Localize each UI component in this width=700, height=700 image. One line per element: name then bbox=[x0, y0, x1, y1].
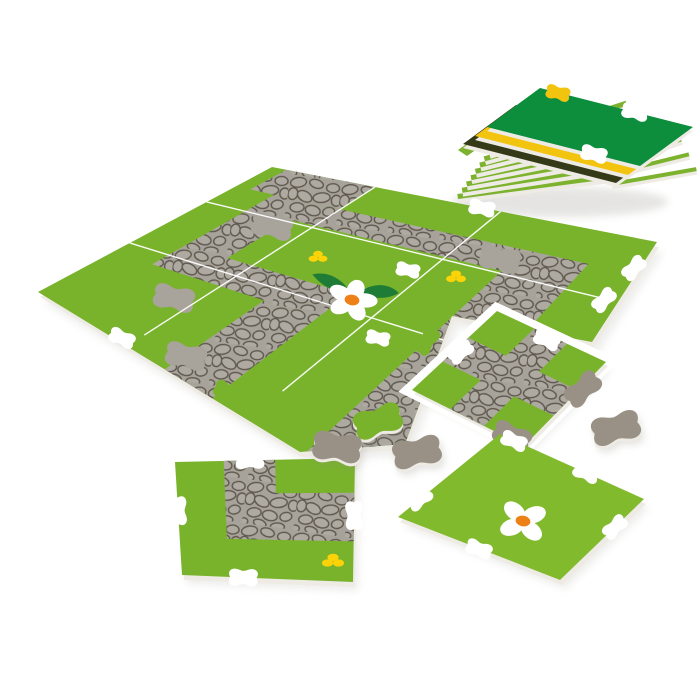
corner-path-tile bbox=[169, 451, 363, 591]
product-photo bbox=[0, 0, 700, 700]
edge-notch bbox=[169, 496, 187, 525]
edge-notch bbox=[235, 451, 264, 469]
edge-notch bbox=[345, 501, 363, 530]
photo-svg bbox=[0, 0, 700, 700]
edge-notch bbox=[229, 568, 258, 586]
